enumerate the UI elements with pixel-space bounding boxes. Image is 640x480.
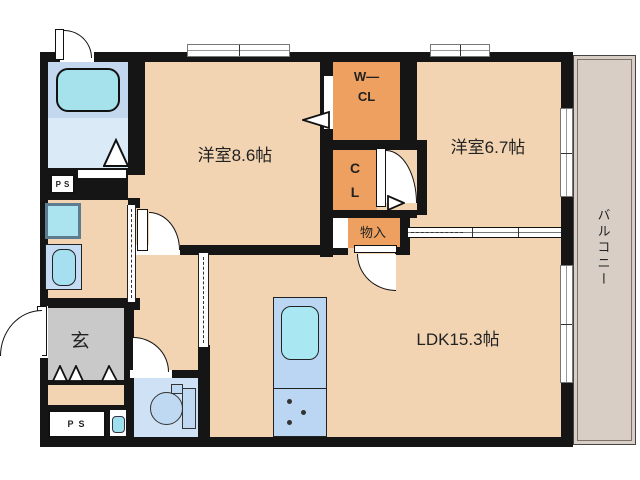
stove-burner <box>301 410 306 415</box>
wall <box>198 345 210 437</box>
entrance-label: 玄 <box>66 330 94 354</box>
wall <box>128 52 145 175</box>
stove-burner <box>287 399 292 404</box>
room-west-67-label: 洋室6.7帖 <box>408 137 568 159</box>
storage-door-leaf <box>354 245 397 253</box>
shoe-cabinet-door-icon <box>52 365 68 382</box>
floor-plan: 洋室8.6帖 洋室6.7帖 LDK15.3帖 W― CL C L 物入 玄 バル… <box>0 0 640 480</box>
bathroom-folding-door-icon <box>103 138 129 168</box>
hand-basin <box>112 416 125 433</box>
walkin-closet-label-line2: CL <box>333 86 400 108</box>
bedroom86-door-leaf <box>137 209 148 251</box>
sliding-door-washroom <box>127 205 136 302</box>
wall <box>400 52 417 140</box>
bathroom-opening <box>78 170 126 178</box>
room-west-86-label: 洋室8.6帖 <box>155 145 315 167</box>
service-door-leaf <box>55 29 64 60</box>
wall <box>40 52 573 62</box>
shoe-cabinet-door-icon <box>68 365 84 382</box>
sliding-door-hall-ldk <box>198 253 209 347</box>
pipe-space-bottom: PS <box>48 410 106 438</box>
hand-basin-niche <box>110 410 126 436</box>
service-door-swing <box>64 30 92 58</box>
wall <box>44 298 128 308</box>
closet-door-leaf <box>376 148 386 207</box>
counter-divider <box>274 388 326 389</box>
entrance-door-swing <box>0 310 42 356</box>
vanity-sink <box>52 249 76 286</box>
wall <box>325 140 417 150</box>
shoe-cabinet-door-icon <box>101 365 118 382</box>
vanity-unit <box>45 244 82 290</box>
walkin-closet-door-icon <box>302 111 330 129</box>
toilet-bowl <box>150 392 183 425</box>
pipe-space-top: PS <box>50 174 75 194</box>
bathtub <box>56 68 120 112</box>
kitchen-counter <box>273 297 327 437</box>
washing-machine-pan <box>45 203 81 239</box>
toilet-tank <box>182 388 196 429</box>
stove-burner <box>287 420 292 425</box>
window <box>560 265 573 383</box>
closet-label-line2: L <box>333 182 377 202</box>
walkin-closet-label-line1: W― <box>333 66 400 88</box>
storage-label: 物入 <box>346 220 400 246</box>
wall <box>395 247 410 255</box>
kitchen-sink <box>281 306 319 360</box>
closet-label-line1: C <box>333 158 377 178</box>
closet-door-arrow-icon <box>387 195 405 211</box>
wall <box>320 247 348 255</box>
window <box>430 44 490 57</box>
ldk-label: LDK15.3帖 <box>378 329 538 351</box>
sliding-door-bedroom67-ldk <box>408 227 561 238</box>
window <box>187 44 290 57</box>
balcony-label: バルコニー <box>589 192 615 304</box>
